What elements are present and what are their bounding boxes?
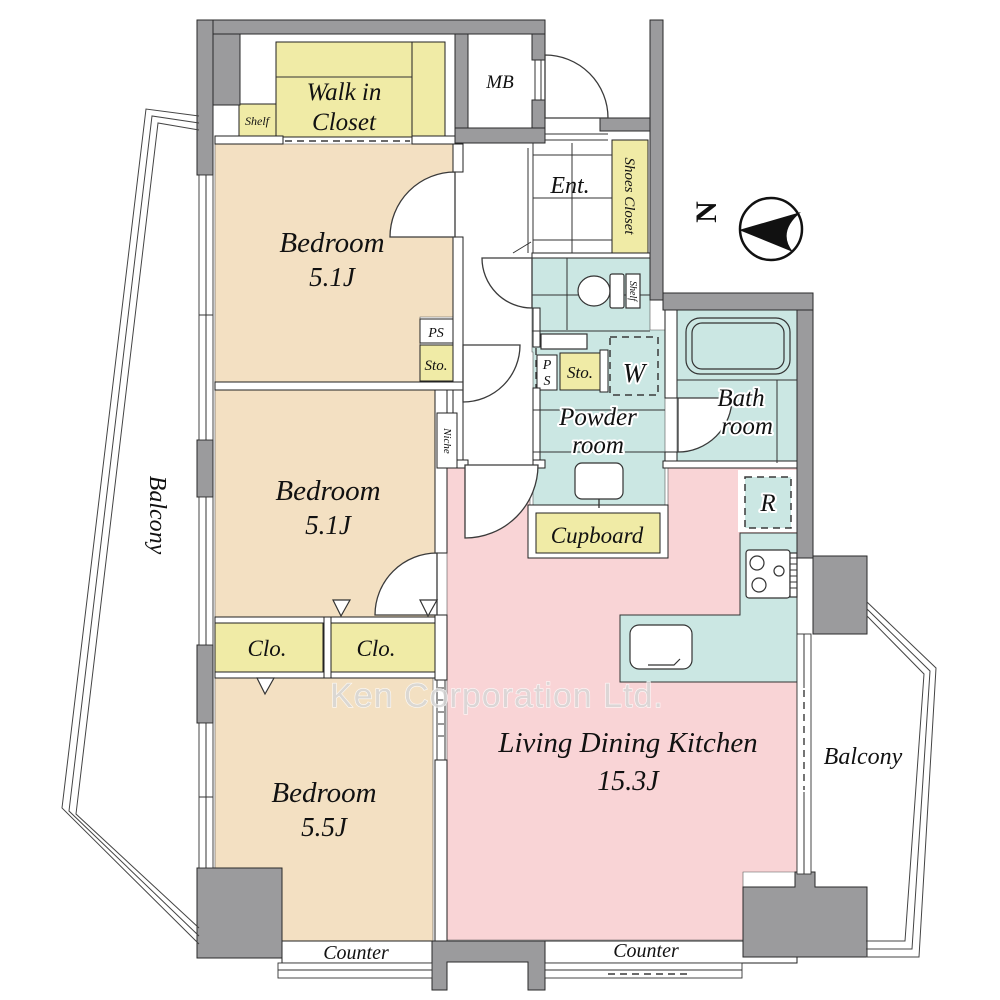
balcony-left-rail xyxy=(62,109,199,944)
label-powder-1: Powder xyxy=(558,404,637,431)
kitchen-sink-icon xyxy=(630,625,692,669)
label-wic-1: Walk in xyxy=(307,79,382,106)
label-cupboard: Cupboard xyxy=(551,523,644,548)
toilet-tank xyxy=(610,274,624,308)
label-shoes-closet: Shoes Closet xyxy=(621,157,637,235)
label-bath-1: Bath xyxy=(717,385,764,412)
label-sto-lower: Sto. xyxy=(567,363,593,382)
label-wic-2: Closet xyxy=(312,109,377,136)
label-ldk-name: Living Dining Kitchen xyxy=(497,727,757,759)
label-powder-2: room xyxy=(572,432,624,459)
label-shelf-toilet: Shelf xyxy=(627,281,638,302)
compass-icon: N xyxy=(690,198,802,260)
toilet-icon xyxy=(578,276,610,306)
label-clo-right: Clo. xyxy=(357,636,396,661)
walk-in-closet-side xyxy=(412,42,445,137)
balcony-right-rail xyxy=(866,602,936,957)
label-counter-left: Counter xyxy=(323,942,389,964)
toilet-door-swing xyxy=(482,258,532,308)
label-ps-lower-p: P xyxy=(542,358,552,373)
label-bedroom3-name: Bedroom xyxy=(271,777,376,809)
entrance-step xyxy=(513,143,533,253)
compass-needle xyxy=(739,212,801,252)
compass-north-label: N xyxy=(690,201,723,223)
label-bedroom3-size: 5.5J xyxy=(301,812,349,842)
watermark: Ken Corporation Ltd. xyxy=(330,677,664,715)
label-bath-2: room xyxy=(721,413,773,440)
hall-door-swing xyxy=(463,345,520,402)
entry-door-swing xyxy=(545,55,608,118)
label-counter-right: Counter xyxy=(613,940,679,962)
label-bedroom2-size: 5.1J xyxy=(305,510,353,540)
label-shelf-wic: Shelf xyxy=(245,114,271,128)
powder-sink-icon xyxy=(575,463,623,499)
label-niche: Niche xyxy=(441,427,453,454)
label-mb: MB xyxy=(485,72,514,93)
label-sto-upper: Sto. xyxy=(425,358,448,374)
label-ent: Ent. xyxy=(549,173,589,199)
floor-plan-canvas: N Walk in Closet Shelf MB Ent. Shoes Clo… xyxy=(0,0,1000,1000)
toilet-basin-icon xyxy=(541,334,587,349)
label-clo-left: Clo. xyxy=(248,636,287,661)
grill-icon xyxy=(790,553,797,597)
floor-plan-page: N Walk in Closet Shelf MB Ent. Shoes Clo… xyxy=(0,0,1000,1000)
entry-threshold xyxy=(545,134,608,140)
label-balcony-right: Balcony xyxy=(824,744,903,770)
label-ldk-size: 15.3J xyxy=(597,766,660,797)
label-ps-upper: PS xyxy=(427,326,444,341)
label-fridge: R xyxy=(759,490,775,517)
label-washer: W xyxy=(623,358,648,388)
label-bedroom1-size: 5.1J xyxy=(309,262,357,292)
label-bedroom1-name: Bedroom xyxy=(279,227,384,259)
mb-door xyxy=(535,60,541,100)
label-ps-lower-s: S xyxy=(544,374,551,389)
label-balcony-left: Balcony xyxy=(144,476,170,555)
label-bedroom2-name: Bedroom xyxy=(275,475,380,507)
